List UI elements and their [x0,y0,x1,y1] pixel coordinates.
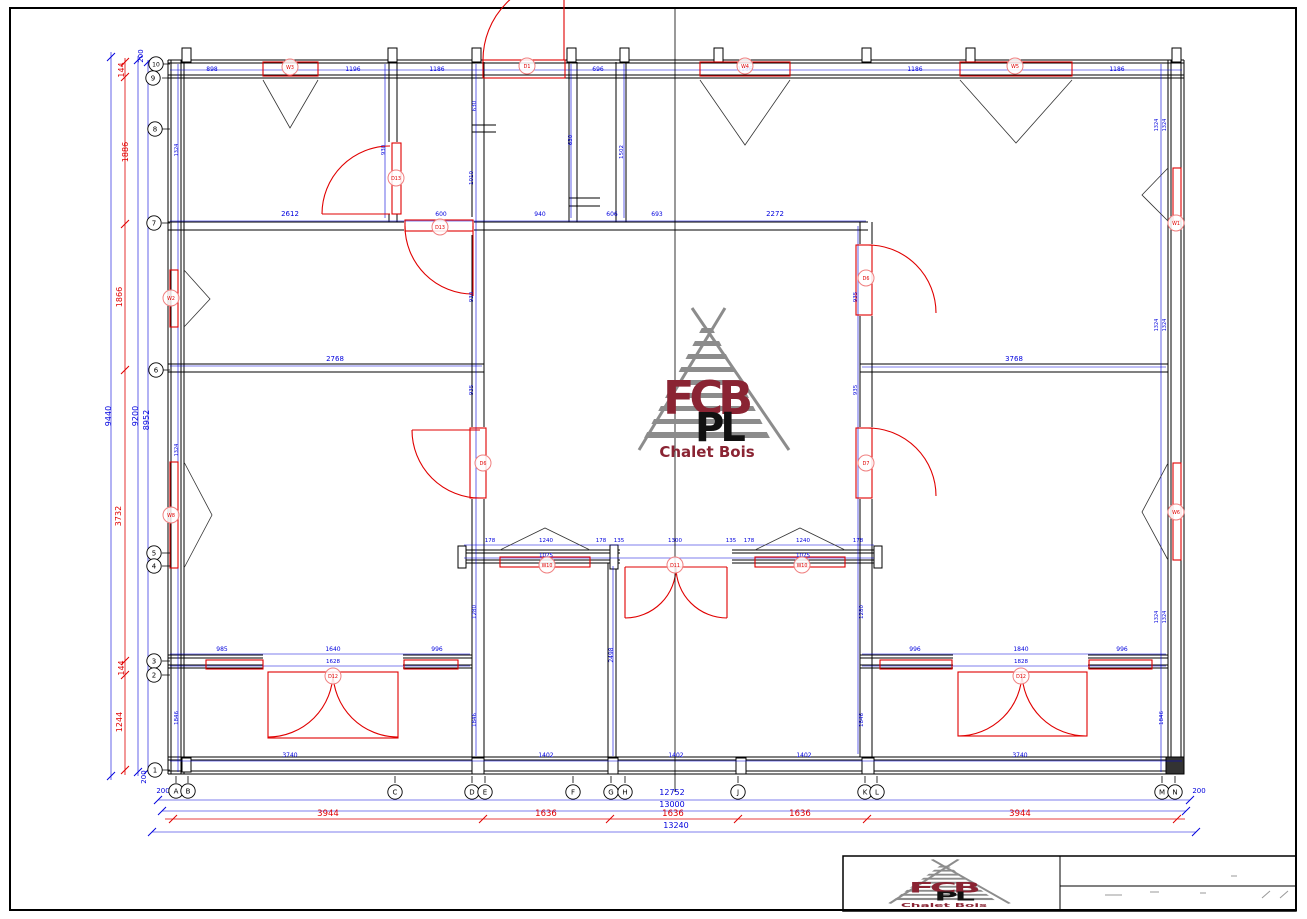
grid-bubble-label: J [736,789,739,797]
grid-bubble-label: 5 [152,550,156,558]
dim-label-blue: 1324 [1154,319,1160,332]
dim-label-blue: 996 [431,646,443,653]
dim-label-blue: 1196 [345,66,360,73]
grid-bubble-label: A [174,788,179,796]
dim-label-blue: 1010 [469,171,475,185]
floorplan-drawing: FCB PL Chalet Bois FCB PL Chalet Bois [0,0,1307,919]
dim-label-blue: 200 [140,770,148,783]
dim-label-red: 144 [117,660,126,675]
dim-labels-layer: 8981196118669611861186118626126009406066… [104,49,1206,830]
dim-label-blue: 200 [1192,787,1205,795]
balloon-label: W10 [797,563,808,569]
dim-label-blue: 1300 [668,538,682,544]
balloon-label: D12 [1016,674,1026,680]
dim-label-blue: 1640 [325,646,340,653]
red-dim-lines [125,58,1185,819]
dim-label-blue: 178 [853,538,864,544]
door-swing-d11 [625,567,727,618]
grid-bubble-label: D [469,789,474,797]
dim-label-blue: 135 [614,538,625,544]
grid-bubble-label: 8 [153,126,157,134]
door-swing-d13b [405,226,473,296]
grid-bubbles-layer: 10987654321ABCDEFGHJKLMN [146,57,1182,799]
dim-label-blue: 1828 [1014,659,1028,665]
grid-bubble-label: 6 [154,367,159,375]
dim-label-blue: 200 [156,787,169,795]
dim-label-blue: 178 [744,538,755,544]
balloon-label: D7 [863,461,870,467]
dim-label-blue: 985 [216,646,228,653]
dim-label-blue: 1846 [1159,711,1165,725]
balloon-label: W5 [1011,64,1019,70]
balloon-label: D6 [863,276,870,282]
dim-label-red: 3944 [317,809,339,819]
dim-label-blue: 935 [469,384,475,395]
dim-label-blue: 606 [606,211,618,218]
dim-label-blue: 996 [909,646,921,653]
dim-label-blue: 1240 [539,538,553,544]
grid-bubble-label: E [483,789,487,797]
grid-bubble-label: B [186,788,191,796]
dim-label-blue: 135 [726,538,737,544]
dim-label-blue: 940 [534,211,546,218]
dim-label-red: 1244 [115,712,124,732]
dim-label-blue: 9440 [104,406,113,426]
door-swing-d13a [322,146,390,214]
dim-label-blue: 2612 [281,210,299,218]
titleblock-logo: FCB PL Chalet Bois [888,859,1010,908]
dim-label-red: 1886 [121,142,130,162]
dim-label-blue: 13000 [659,800,684,809]
dim-label-blue: 1324 [174,144,180,157]
dim-label-blue: 1502 [619,145,625,159]
dim-label-blue: 1280 [472,605,478,619]
dim-label-blue: 1324 [1154,119,1160,132]
dim-label-blue: 930 [469,291,475,302]
dim-label-blue: 200 [137,49,145,62]
grid-bubble-label: H [622,789,627,797]
dim-label-blue: 1628 [326,659,340,665]
dim-label-blue: 898 [206,66,218,73]
titleblock-logo-caption: Chalet Bois [901,903,987,909]
dim-label-blue: 3740 [1012,752,1027,759]
balloon-label: W8 [167,513,175,519]
dim-label-red: 1636 [662,809,684,819]
titleblock-annotations [1105,876,1288,898]
dim-label-blue: 1186 [429,66,444,73]
balloon-label: D13 [391,176,401,182]
window-marks [184,80,1168,568]
dim-label-blue: 1186 [1109,66,1124,73]
dim-label-blue: 3768 [1005,355,1023,363]
dim-label-blue: 2272 [766,210,784,218]
dim-label-blue: 1324 [1162,611,1168,624]
dim-label-blue: 1402 [538,752,553,759]
dim-label-blue: 600 [435,211,447,218]
grid-bubble-label: M [1159,789,1165,797]
grid-bubble-label: N [1172,789,1177,797]
dim-label-blue: 693 [651,211,663,218]
grid-bubble-label: G [608,789,613,797]
dim-label-blue: 178 [596,538,607,544]
balloon-label: W1 [1172,221,1180,227]
grid-bubble-label: 1 [153,767,157,775]
dim-label-blue: 935 [853,384,859,395]
dim-label-blue: 1324 [1162,319,1168,332]
grid-bubble-label: 3 [152,658,156,666]
balloon-label: W6 [1172,510,1180,516]
grid-bubble-label: F [571,789,575,797]
titleblock-logo-pl: PL [934,889,974,904]
dim-label-blue: 1324 [1154,611,1160,624]
balloon-label: D13 [435,225,445,231]
dim-label-blue: 3740 [282,752,297,759]
dim-label-blue: 1840 [1013,646,1028,653]
grid-bubble-label: 10 [152,62,160,69]
dim-label-blue: 12752 [659,788,684,797]
dim-label-blue: 930 [381,144,387,155]
balloon-label: W10 [542,563,553,569]
dim-label-blue: 1402 [668,752,683,759]
door-swing-d6b [868,245,936,313]
dim-label-blue: 1846 [859,713,865,727]
dim-label-blue: 2768 [326,355,344,363]
blue-dim-lines [111,52,1196,832]
fcb-logo: FCB PL Chalet Bois [637,308,789,461]
grid-bubble-label: 7 [152,220,156,228]
dim-label-blue: 2498 [608,647,615,662]
grid-bubble-label: C [393,789,398,797]
grid-bubble-label: 2 [152,672,156,680]
balloon-label: D11 [670,563,680,569]
drawing-page: FCB PL Chalet Bois FCB PL Chalet Bois [0,0,1307,919]
grid-bubble-label: 9 [151,75,155,83]
logo-caption: Chalet Bois [659,443,754,461]
title-block: FCB PL Chalet Bois [843,856,1296,911]
dim-label-blue: 1324 [174,444,180,457]
balloon-label: W2 [167,296,175,302]
balloon-label: D12 [328,674,338,680]
grid-bubble-label: L [875,789,879,797]
window-door-markers [170,0,1181,738]
grid-bubble-label: 4 [152,563,157,571]
dim-label-blue: 13240 [663,821,688,830]
dim-label-red: 3732 [114,506,123,526]
dim-label-blue: 1846 [472,713,478,727]
dim-label-blue: 996 [1116,646,1128,653]
dim-label-blue: 630 [472,100,478,111]
dim-label-blue: 1280 [859,605,865,619]
dim-label-blue: 1324 [1162,119,1168,132]
dim-label-blue: 935 [853,291,859,302]
balloon-label: W4 [741,64,749,70]
page-border [10,8,1296,910]
dim-label-blue: 1402 [796,752,811,759]
dim-label-red: 1636 [535,809,557,819]
dim-label-blue: 1186 [907,66,922,73]
dim-label-blue: 9200 [131,406,140,426]
balloon-label: W3 [286,65,294,71]
dim-label-blue: 630 [568,134,574,145]
dim-label-red: 3944 [1009,809,1031,819]
dim-label-blue: 1846 [174,711,180,725]
dim-label-blue: 1240 [796,538,810,544]
dim-label-blue: 8952 [142,410,151,430]
balloon-label: D1 [524,64,531,70]
dim-label-red: 1866 [115,287,124,307]
grid-bubble-label: K [863,789,868,797]
dim-label-red: 1636 [789,809,811,819]
door-swing-d7 [868,428,936,496]
dim-label-red: 144 [117,62,126,77]
dim-label-blue: 178 [485,538,496,544]
balloon-label: D6 [480,461,487,467]
dim-ticks-layer [107,53,1200,836]
dim-label-blue: 696 [592,66,604,73]
